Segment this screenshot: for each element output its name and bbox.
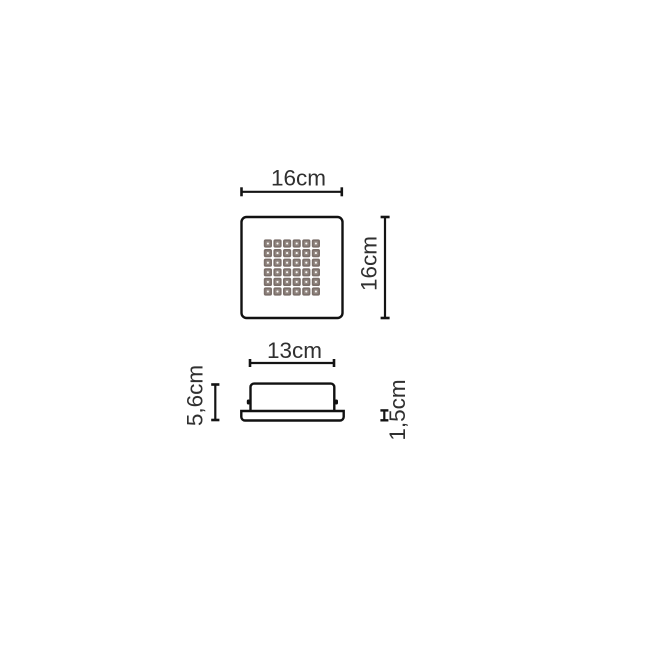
svg-text:16cm: 16cm — [271, 166, 326, 191]
svg-text:5,6cm: 5,6cm — [183, 365, 208, 426]
svg-text:1,5cm: 1,5cm — [385, 379, 410, 440]
svg-text:13cm: 13cm — [267, 338, 322, 363]
svg-text:16cm: 16cm — [356, 236, 381, 291]
